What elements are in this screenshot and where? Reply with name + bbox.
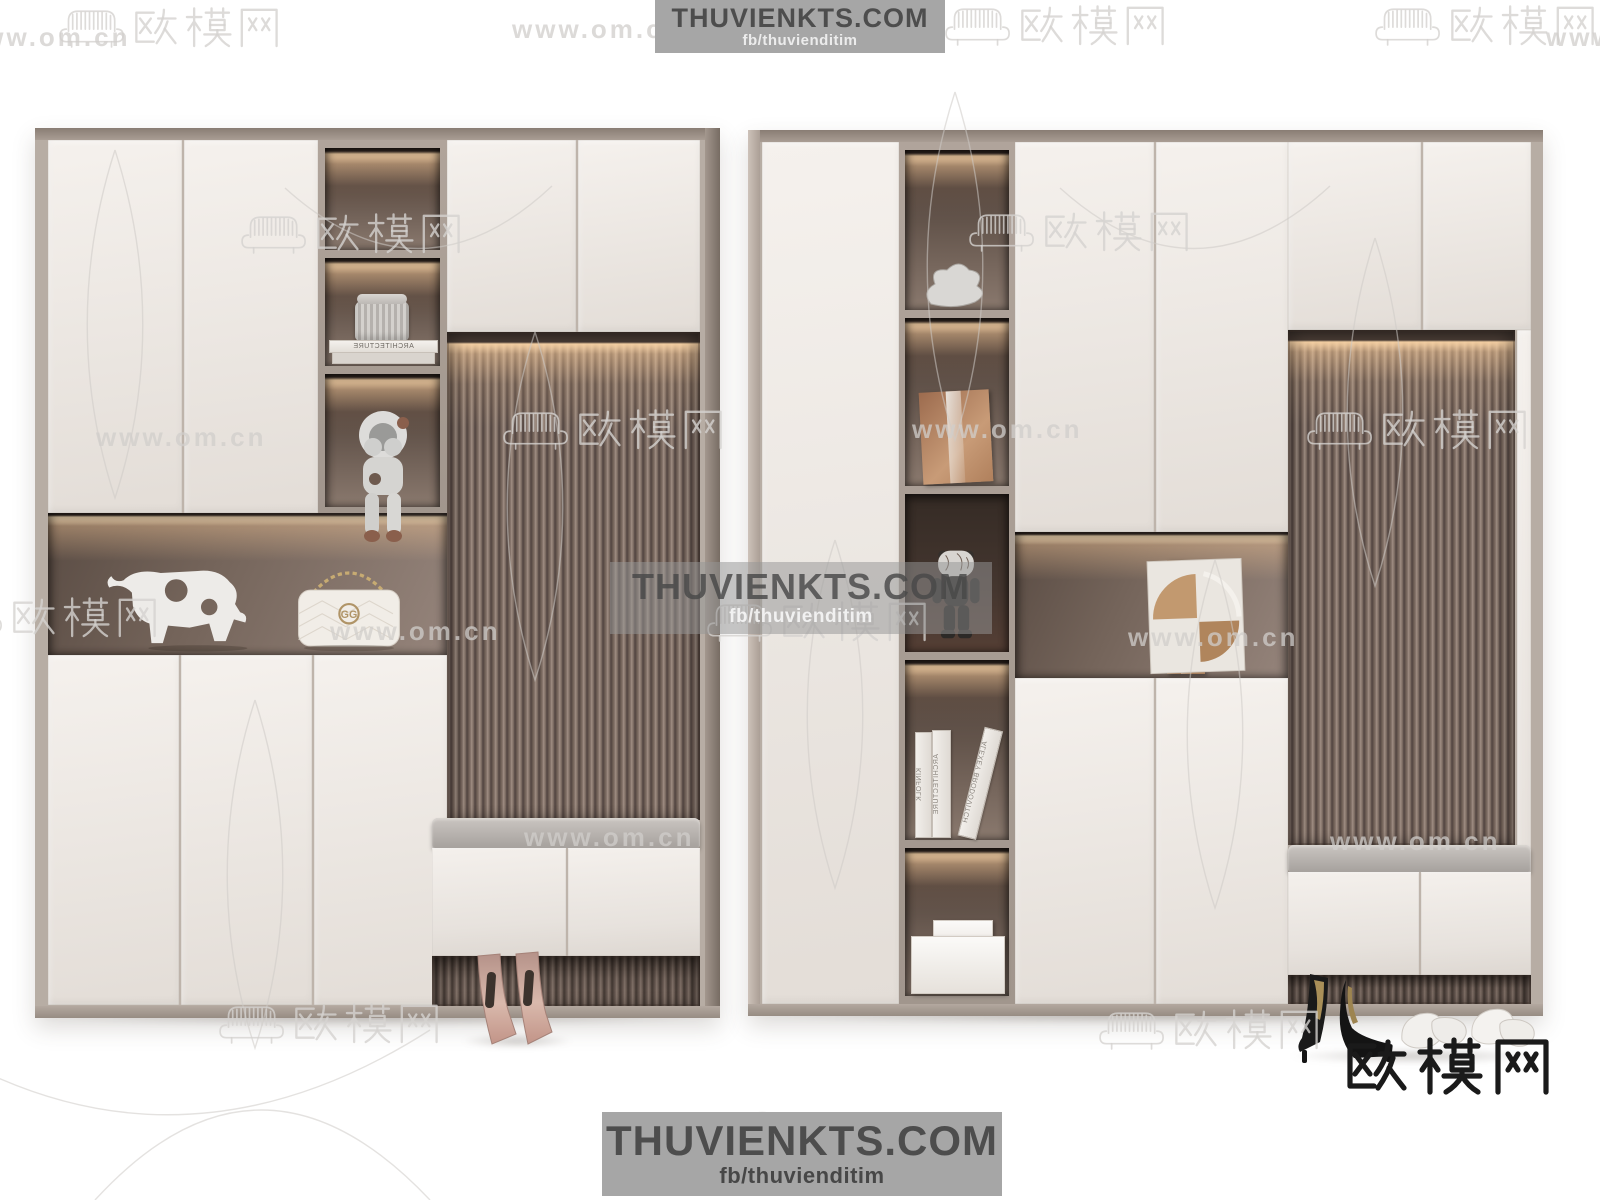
right-lower-doors [1015,678,1288,1004]
left-bench-cushion [432,818,700,848]
abstract-sculpture [919,256,995,308]
top-banner-title: THUVIENKTS.COM [672,4,929,32]
top-banner: THUVIENKTS.COM fb/thuvienditim [655,0,945,53]
book-spine-label: ARCHITECTURE [933,735,950,833]
left-shelf-column: ARCHITECTURE [318,140,447,513]
book-spine-label: KINFOLK [916,737,931,833]
right-cabinet-top-edge [748,130,1543,142]
shelf-niche: KINFOLK ARCHITECTURE ALEXEY BRODOVITCH [905,660,1009,840]
drawer-front [1421,872,1531,975]
right-bench-cushion [1288,845,1531,872]
svg-text:www.om.cn: www.om.cn [1545,22,1600,52]
storage-box [911,936,1005,994]
door-panel [1015,142,1154,532]
right-upper-doors [1015,142,1288,532]
drawer-front [432,848,566,956]
book-spine-label: ALEXEY BRODOVITCH [960,732,1001,835]
decor-book [332,352,435,364]
center-banner-subtitle: fb/thuvienditim [729,606,873,628]
bottom-banner: THUVIENKTS.COM fb/thuvienditim [602,1112,1002,1196]
top-banner-subtitle: fb/thuvienditim [743,32,858,49]
door-panel [314,655,447,1005]
drawer-front [568,848,700,956]
scene: 欧模网 欧模网 ARCHITECTURE [0,0,1600,1200]
door-panel [1423,142,1531,330]
drawer-front [1288,872,1419,975]
pink-high-heels [470,950,554,1050]
door-panel [48,140,182,513]
svg-text:www.om.cn: www.om.cn [0,22,131,52]
door-panel [181,655,312,1005]
door-panel [1156,678,1288,1004]
bull-sculpture [103,559,268,653]
left-bench-drawers [432,848,700,956]
shelf-niche [905,150,1009,310]
door-panel [1156,142,1288,532]
door-panel [48,655,179,1005]
decor-book: ALEXEY BRODOVITCH [958,727,1004,840]
decor-jar [355,301,409,341]
bottom-banner-subtitle: fb/thuvienditim [719,1163,884,1189]
door-panel [1015,678,1154,1004]
handbag: GG [290,553,408,653]
decor-book: ARCHITECTURE [932,730,951,838]
om-site-logo [1342,1030,1560,1102]
right-bench-drawers [1288,872,1531,975]
right-fluted-panel [1288,330,1515,845]
shelf-niche: ARCHITECTURE [325,258,440,366]
bag-monogram: GG [341,609,358,621]
shelf-niche [905,318,1009,486]
watermark-brand-text: 欧模网 [0,0,1,1]
shelf-niche [325,148,440,250]
book-spine-label: ARCHITECTURE [353,343,414,350]
shelf-niche [325,374,440,507]
right-display-niche [1015,532,1288,678]
door-panel [447,140,576,332]
left-upper-doors [48,140,318,513]
left-lower-doors [48,655,447,1005]
left-cabinet-base [35,1006,720,1018]
shelf-niche [905,848,1009,996]
jar-lid [357,294,407,304]
framed-artwork [1145,558,1247,676]
door-panel [184,140,318,513]
center-banner-title: THUVIENKTS.COM [632,568,970,606]
left-cabinet-top-edge [35,128,720,140]
site-logo-text: 欧模网 [0,0,1,1]
art-board [919,389,994,485]
right-top-doors [1288,142,1531,330]
door-panel [578,140,700,332]
astronaut-figurine [345,405,421,555]
bottom-banner-title: THUVIENKTS.COM [606,1119,998,1163]
center-watermark-banner: THUVIENKTS.COM fb/thuvienditim [610,562,992,634]
decor-book: KINFOLK [915,732,932,838]
door-panel [1288,142,1421,330]
left-upper-right-doors [447,140,700,332]
